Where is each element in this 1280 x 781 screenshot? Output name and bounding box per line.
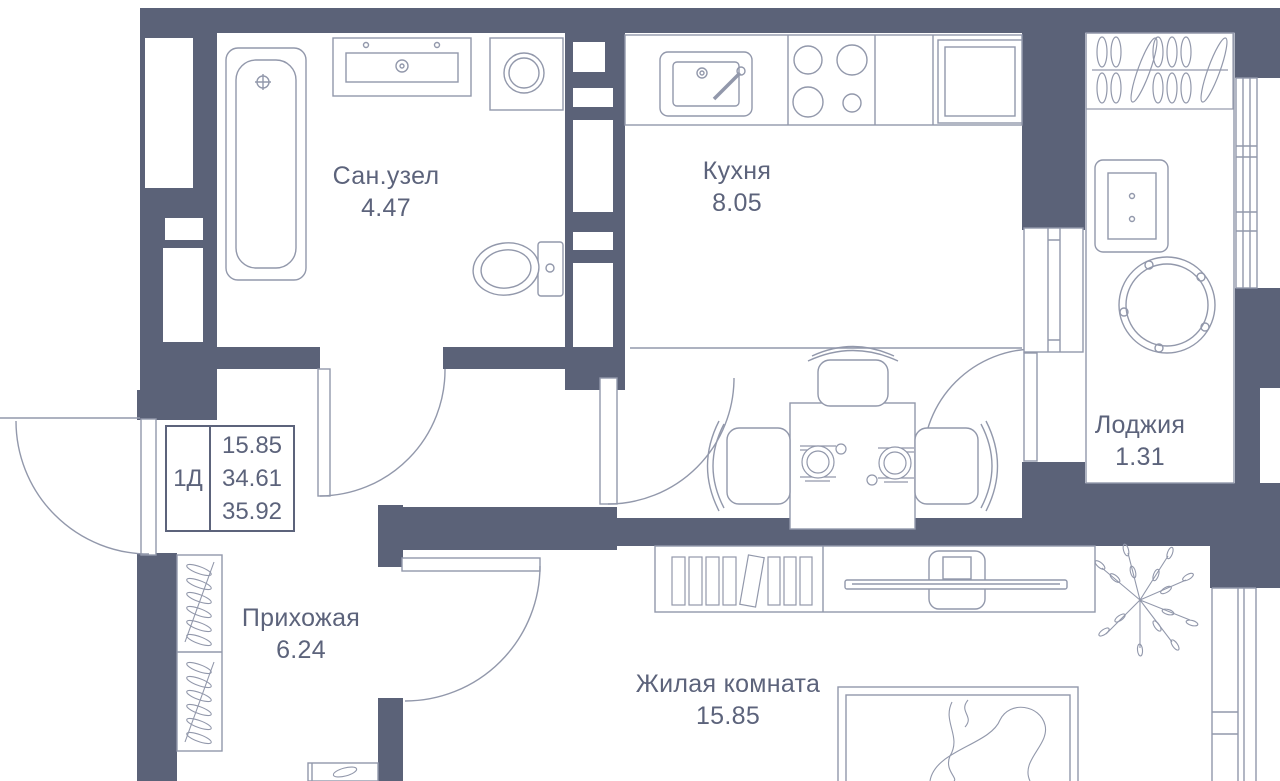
room-label-kitchen: Кухня 8.05: [703, 155, 771, 219]
room-area: 6.24: [242, 634, 360, 666]
apartment-info-card: 1Д 15.85 34.61 35.92: [165, 425, 295, 532]
room-area: 4.47: [333, 192, 440, 224]
vanity-sink-icon: [333, 38, 471, 96]
armchair-icon: [1095, 160, 1168, 252]
chair-icon: [808, 347, 898, 407]
living-area-value: 15.85: [222, 432, 282, 460]
wardrobe-hangers-icon: [177, 555, 222, 751]
apartment-type: 1Д: [167, 427, 211, 530]
room-name: Кухня: [703, 155, 771, 187]
apartment-area-value: 34.61: [222, 465, 282, 493]
room-name: Прихожая: [242, 602, 360, 634]
room-area: 1.31: [1095, 441, 1185, 473]
shoe-cabinet-icon: [308, 763, 378, 781]
living-room-door-swing: [402, 558, 540, 701]
plant-icon: [1094, 544, 1199, 657]
living-room-window: [1212, 588, 1256, 781]
total-area-value: 35.92: [222, 498, 282, 526]
room-label-bathroom: Сан.узел 4.47: [333, 160, 440, 224]
chair-icon: [708, 421, 791, 511]
toilet-icon: [470, 239, 563, 300]
room-name: Жилая комната: [636, 668, 820, 700]
washing-machine-icon: [490, 38, 563, 110]
room-name: Лоджия: [1095, 409, 1185, 441]
floor-plan: Сан.узел 4.47 Кухня 8.05 Лоджия 1.31 При…: [0, 0, 1280, 781]
room-name: Сан.узел: [333, 160, 440, 192]
fridge-icon: [938, 40, 1022, 123]
room-area: 15.85: [636, 700, 820, 732]
room-area: 8.05: [703, 187, 771, 219]
loggia-window: [1024, 228, 1083, 352]
bathroom-door-swing: [318, 369, 445, 496]
entrance-door-swing: [16, 419, 156, 555]
room-label-living-room: Жилая комната 15.85: [636, 668, 820, 732]
kitchen-door-swing: [600, 378, 734, 504]
room-label-loggia: Лоджия 1.31: [1095, 409, 1185, 473]
chair-icon: [915, 421, 998, 511]
bed-icon: [838, 687, 1078, 781]
plan-linework: [0, 0, 1280, 781]
bathtub-icon: [226, 48, 306, 280]
room-label-hallway: Прихожая 6.24: [242, 602, 360, 666]
loggia-side-window: [1236, 78, 1257, 288]
tv-console: [655, 546, 1095, 612]
round-table-icon: [1119, 257, 1215, 353]
kitchen-sink-icon: [660, 52, 752, 116]
